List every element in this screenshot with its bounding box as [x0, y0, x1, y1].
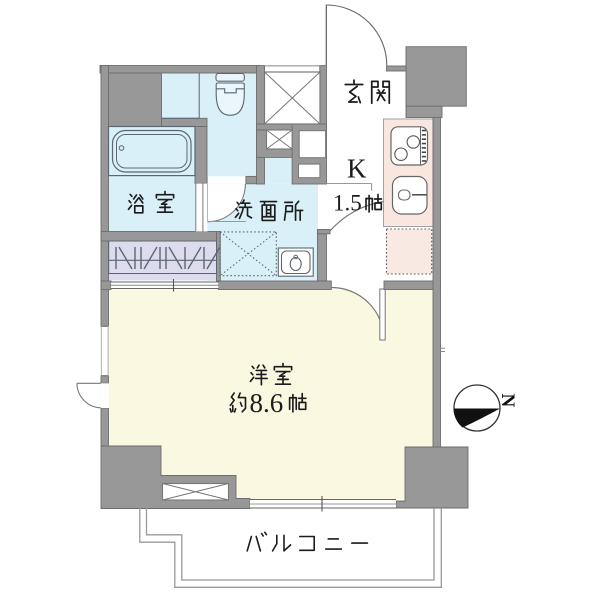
- svg-text:K: K: [347, 154, 367, 184]
- svg-text:8.6: 8.6: [250, 388, 284, 418]
- svg-text:1.5: 1.5: [333, 191, 362, 216]
- svg-text:N: N: [497, 394, 518, 408]
